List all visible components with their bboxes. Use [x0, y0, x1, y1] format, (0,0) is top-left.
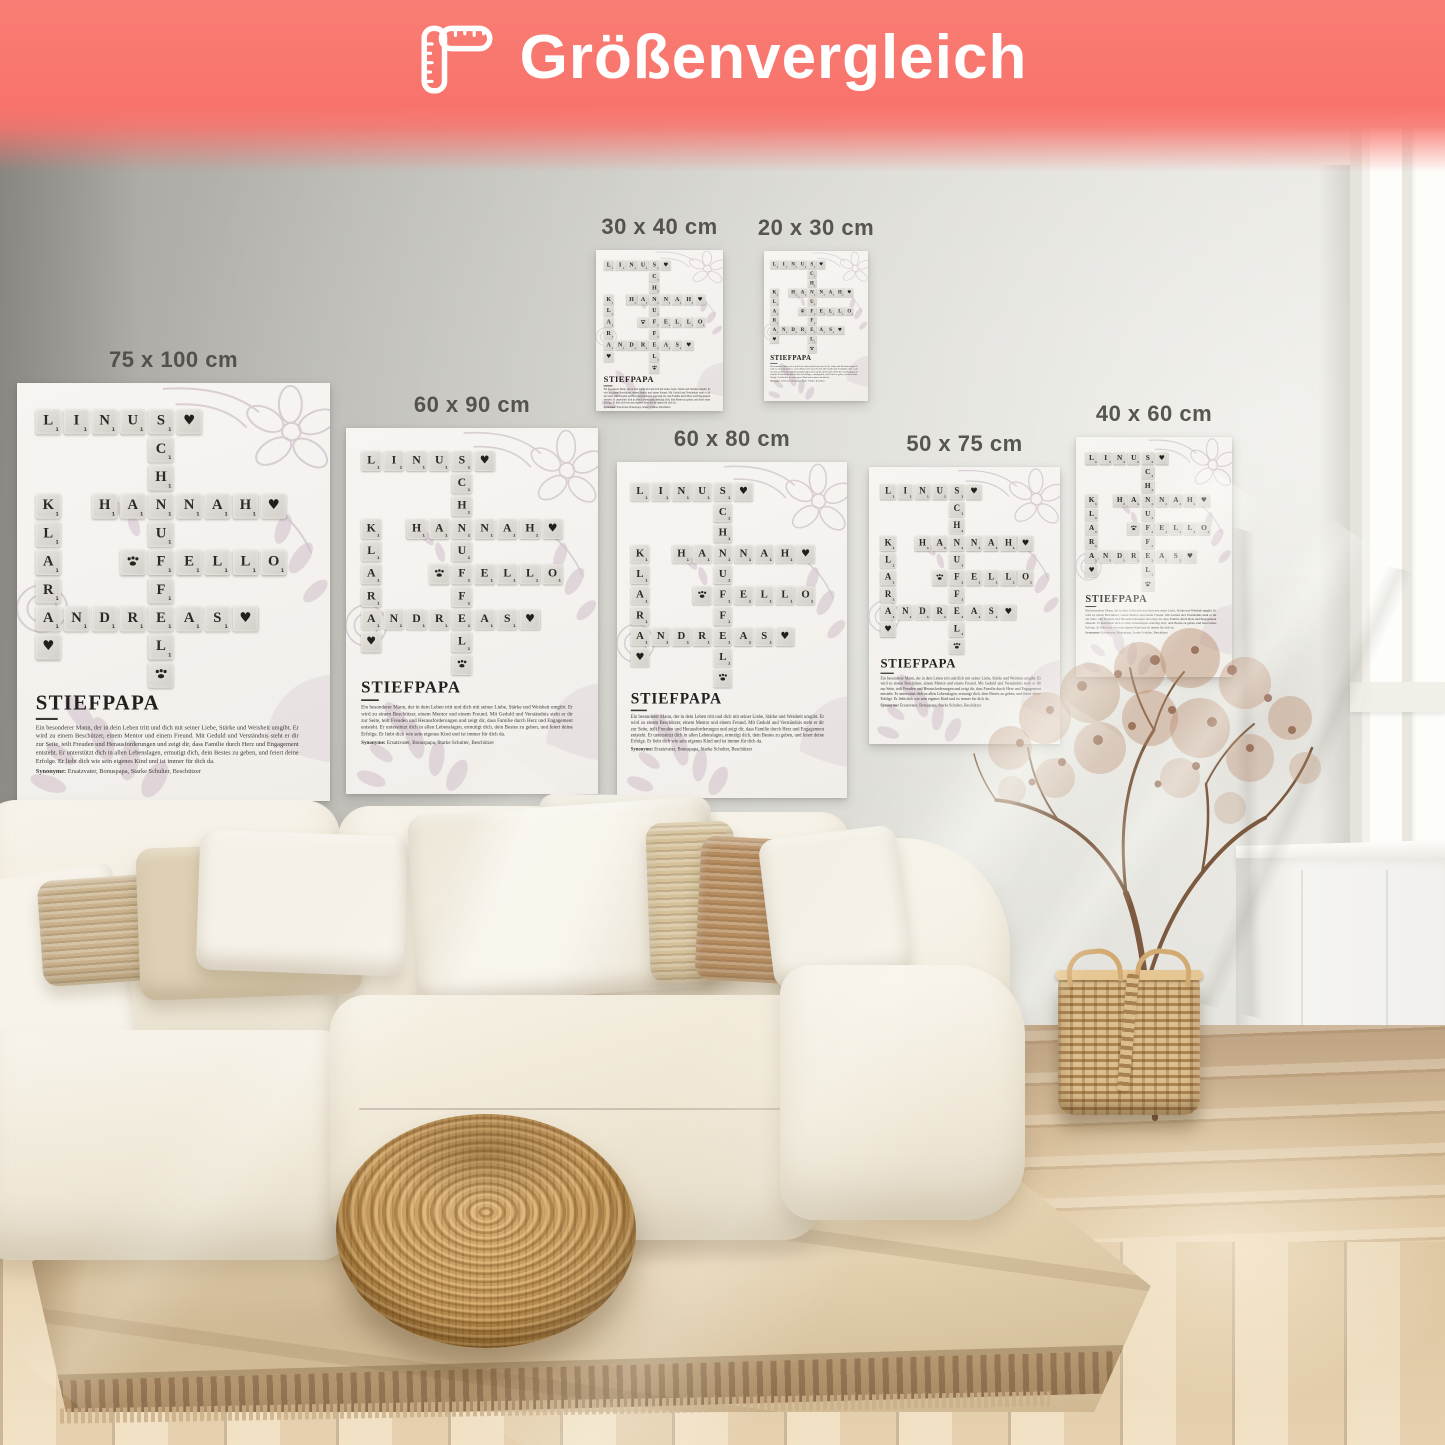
tile-A: A1 [1085, 550, 1097, 562]
tile-I: I1 [1099, 452, 1111, 464]
tile-F: F1 [649, 329, 659, 339]
poster-description: Ein besonderer Mann, der in dein Leben t… [770, 365, 857, 379]
tile-value: 1 [377, 557, 380, 561]
tile-A: A1 [932, 536, 947, 551]
tile-H: H1 [915, 536, 930, 551]
tile-N: N1 [1099, 550, 1111, 562]
tile-paw [693, 586, 711, 604]
tile-value: 1 [1137, 504, 1139, 506]
tile-S: S1 [1142, 452, 1154, 464]
tile-value: 1 [927, 496, 929, 499]
tile-L: L1 [880, 484, 895, 499]
tile-U: U1 [120, 409, 145, 434]
tile-E: E1 [714, 628, 732, 646]
paw-icon [718, 674, 727, 682]
tile-heart: ♥ [1085, 564, 1097, 576]
tile-H: H1 [649, 283, 659, 293]
tile-I: I1 [652, 483, 670, 501]
tile-value: 1 [1123, 462, 1125, 464]
tile-N: N1 [649, 294, 659, 304]
poster-print: L1I1N1U1S1♥C1H1K1H1A1N1N1A1H1♥L1U1A1F1E1… [17, 383, 330, 801]
tile-value: 1 [55, 428, 58, 433]
tile-value: 1 [645, 559, 647, 562]
tile-value: 1 [777, 314, 778, 316]
tile-value: 1 [422, 466, 425, 470]
tile-value: 1 [687, 497, 689, 500]
tile-L: L1 [1184, 522, 1196, 534]
tile-value: 1 [634, 302, 635, 304]
tile-value: 1 [55, 569, 58, 574]
tile-value: 1 [645, 642, 647, 645]
tile-E: E1 [661, 317, 671, 327]
poster-synonyms: Synonyme: Ersatzvater, Bonuspapa, Starke… [361, 741, 573, 748]
tile-value: 1 [892, 565, 894, 568]
tile-value: 1 [1151, 518, 1153, 520]
tile-heart: ♥ [966, 484, 981, 499]
tile-paw [649, 363, 659, 373]
tile-value: 1 [892, 616, 894, 619]
sofa-seat [780, 965, 1025, 1220]
tile-H: H1 [233, 494, 258, 519]
tile-value: 1 [1095, 504, 1097, 506]
cushion [196, 829, 409, 976]
sofa-seat [0, 1030, 350, 1260]
tile-heart: ♥ [845, 288, 853, 296]
tile-value: 1 [707, 559, 709, 562]
heart-icon: ♥ [770, 335, 778, 343]
tile-value: 1 [1109, 462, 1111, 464]
title-underline [604, 385, 613, 386]
tile-value: 1 [558, 580, 561, 584]
tile-N: N1 [615, 340, 625, 350]
tile-value: 1 [422, 534, 425, 538]
tile-value: 1 [657, 314, 658, 316]
tile-N: N1 [148, 494, 173, 519]
tile-value: 1 [1013, 582, 1015, 585]
title-underline [631, 710, 647, 712]
tile-F: F1 [1142, 522, 1154, 534]
tile-C: C1 [148, 437, 173, 462]
heart-icon: ♥ [261, 494, 286, 519]
tile-L: L1 [770, 260, 778, 268]
tile-L: L1 [684, 317, 694, 327]
tile-L: L1 [714, 648, 732, 666]
tile-value: 1 [833, 332, 834, 334]
tile-L: L1 [1170, 522, 1182, 534]
tile-N: N1 [626, 260, 636, 270]
tile-N: N1 [1142, 494, 1154, 506]
tile-H: H1 [452, 496, 472, 516]
tile-value: 1 [1013, 548, 1015, 551]
tile-value: 1 [795, 295, 796, 297]
tile-value: 1 [680, 348, 681, 350]
tile-value: 1 [646, 268, 647, 270]
tile-U: U1 [714, 566, 732, 584]
heart-icon: ♥ [776, 628, 794, 646]
tile-value: 1 [445, 625, 448, 629]
tile-value: 1 [645, 497, 647, 500]
synonyms-label: Synonyme: [770, 380, 780, 382]
poster-title: STIEFPAPA [770, 355, 857, 362]
tile-value: 1 [377, 466, 380, 470]
tile-value: 1 [634, 348, 635, 350]
tile-value: 1 [168, 569, 171, 574]
poster-synonyms: Synonyme: Ersatzvater, Bonuspapa, Starke… [770, 380, 857, 383]
poster-print: L1I1N1U1S1♥C1H1K1H1A1N1N1A1H1♥L1U1A1F1E1… [596, 250, 723, 411]
tile-value: 1 [168, 485, 171, 490]
tile-H: H1 [789, 288, 797, 296]
tile-U: U1 [1142, 508, 1154, 520]
tile-L: L1 [1001, 570, 1016, 585]
tile-value: 1 [490, 534, 493, 538]
tile-value: 1 [892, 599, 894, 602]
tile-N: N1 [714, 545, 732, 563]
tile-I: I1 [615, 260, 625, 270]
tile-F: F1 [452, 564, 472, 584]
tile-H: H1 [92, 494, 117, 519]
heart-icon: ♥ [836, 326, 844, 334]
tile-value: 1 [961, 582, 963, 585]
poster-artwork: L1I1N1U1S1♥C1H1K1H1A1N1N1A1H1♥L1U1A1F1E1… [346, 428, 598, 794]
poster-print: L1I1N1U1S1♥C1H1K1H1A1N1N1A1H1♥L1U1A1F1E1… [346, 428, 598, 794]
tile-D: D1 [789, 326, 797, 334]
tile-R: R1 [36, 578, 61, 603]
tile-value: 1 [833, 295, 834, 297]
heart-icon: ♥ [880, 622, 895, 637]
tile-A: A1 [880, 605, 895, 620]
tile-S: S1 [826, 326, 834, 334]
tile-value: 1 [1137, 462, 1139, 464]
poster-size-label: 50 x 75 cm [906, 431, 1022, 457]
tile-value: 1 [728, 497, 730, 500]
tile-value: 1 [680, 325, 681, 327]
tile-F: F1 [808, 307, 816, 315]
paw-icon [457, 660, 467, 669]
tile-S: S1 [808, 260, 816, 268]
tile-value: 1 [707, 497, 709, 500]
tile-value: 1 [669, 348, 670, 350]
tile-value: 1 [814, 332, 815, 334]
tile-value: 1 [140, 513, 143, 518]
tile-value: 1 [400, 466, 403, 470]
tile-value: 1 [490, 580, 493, 584]
poster-print: L1I1N1U1S1♥C1H1K1H1A1N1N1A1H1♥L1U1A1F1E1… [617, 462, 847, 798]
tile-paw [808, 345, 816, 353]
tile-value: 1 [445, 466, 448, 470]
tile-value: 1 [777, 304, 778, 306]
title-underline [770, 363, 777, 364]
tile-value: 1 [657, 325, 658, 327]
poster-synonyms: Synonyme: Ersatzvater, Bonuspapa, Starke… [604, 406, 711, 409]
tile-value: 1 [769, 642, 771, 645]
tile-L: L1 [604, 306, 614, 316]
tile-value: 1 [55, 513, 58, 518]
tile-value: 1 [814, 276, 815, 278]
wicker-basket [1058, 975, 1200, 1115]
tile-heart: ♥ [543, 519, 563, 539]
tile-A: A1 [672, 294, 682, 304]
tile-U: U1 [148, 522, 173, 547]
tile-value: 1 [814, 304, 815, 306]
tile-value: 1 [910, 616, 912, 619]
tile-A: A1 [984, 536, 999, 551]
living-room-scene: 75 x 100 cm [0, 0, 1445, 1445]
tile-N: N1 [780, 326, 788, 334]
tile-L: L1 [520, 564, 540, 584]
tile-value: 1 [749, 559, 751, 562]
tile-S: S1 [649, 260, 659, 270]
tile-S: S1 [949, 484, 964, 499]
scrabble-grid: L1I1N1U1S1♥C1H1K1H1A1N1N1A1H1♥L1U1A1F1E1… [36, 409, 291, 691]
poster-title: STIEFPAPA [36, 693, 299, 715]
tile-value: 1 [790, 559, 792, 562]
tile-value: 1 [692, 302, 693, 304]
tile-value: 1 [1095, 532, 1097, 534]
tile-A: A1 [880, 570, 895, 585]
tile-K: K1 [880, 536, 895, 551]
tile-value: 1 [657, 291, 658, 293]
tile-heart: ♥ [1184, 550, 1196, 562]
tile-value: 1 [1151, 462, 1153, 464]
tile-L: L1 [36, 522, 61, 547]
tile-E: E1 [808, 326, 816, 334]
tile-A: A1 [361, 609, 381, 629]
title-underline [36, 718, 58, 720]
tile-L: L1 [770, 298, 778, 306]
tile-A: A1 [604, 317, 614, 327]
tile-F: F1 [714, 586, 732, 604]
tile-value: 1 [513, 534, 516, 538]
tile-value: 1 [612, 302, 613, 304]
tile-S: S1 [755, 628, 773, 646]
tile-value: 1 [795, 332, 796, 334]
tile-value: 1 [1095, 560, 1097, 562]
tile-F: F1 [949, 570, 964, 585]
tile-N: N1 [817, 288, 825, 296]
tile-A: A1 [661, 340, 671, 350]
poster-60x90cm: 60 x 90 cm [346, 428, 598, 794]
tile-value: 1 [536, 534, 539, 538]
tile-value: 1 [777, 295, 778, 297]
tile-value: 1 [728, 538, 730, 541]
tile-value: 1 [892, 548, 894, 551]
tile-R: R1 [604, 329, 614, 339]
tile-A: A1 [826, 288, 834, 296]
tile-L: L1 [836, 307, 844, 315]
tile-R: R1 [932, 605, 947, 620]
tile-value: 1 [944, 616, 946, 619]
tile-heart: ♥ [770, 335, 778, 343]
tile-value: 1 [422, 625, 425, 629]
heart-icon: ♥ [845, 288, 853, 296]
tile-H: H1 [406, 519, 426, 539]
tile-value: 1 [786, 332, 787, 334]
tile-A: A1 [120, 494, 145, 519]
tile-paw [714, 669, 732, 687]
tile-value: 1 [468, 557, 471, 561]
tile-L: L1 [776, 586, 794, 604]
tile-value: 1 [833, 314, 834, 316]
tile-value: 1 [805, 267, 806, 269]
tile-E: E1 [475, 564, 495, 584]
tile-R: R1 [798, 326, 806, 334]
tile-value: 1 [468, 489, 471, 493]
tile-F: F1 [1142, 536, 1154, 548]
tile-heart: ♥ [475, 451, 495, 471]
poster-artwork: L1I1N1U1S1♥C1H1K1H1A1N1N1A1H1♥L1U1A1F1E1… [764, 251, 868, 401]
tile-D: D1 [626, 340, 636, 350]
tile-value: 1 [1151, 504, 1153, 506]
tile-value: 1 [224, 513, 227, 518]
paw-icon [936, 574, 944, 581]
tile-L: L1 [1142, 564, 1154, 576]
tile-H: H1 [520, 519, 540, 539]
tile-D: D1 [915, 605, 930, 620]
wicker-pouf [336, 1114, 636, 1348]
tile-R: R1 [361, 587, 381, 607]
tile-R: R1 [693, 628, 711, 646]
tile-value: 1 [1151, 560, 1153, 562]
tile-value: 1 [842, 314, 843, 316]
banner-title: Größenvergleich [520, 27, 1028, 89]
tile-N: N1 [898, 605, 913, 620]
tile-K: K1 [361, 519, 381, 539]
tile-F: F1 [148, 578, 173, 603]
tile-H: H1 [684, 294, 694, 304]
tile-value: 1 [377, 580, 380, 584]
tile-heart: ♥ [796, 545, 814, 563]
heart-icon: ♥ [543, 519, 563, 539]
tile-value: 1 [842, 295, 843, 297]
tile-value: 1 [814, 267, 815, 269]
tile-value: 1 [927, 548, 929, 551]
tile-value: 1 [978, 548, 980, 551]
tile-value: 1 [786, 267, 787, 269]
tile-N: N1 [475, 519, 495, 539]
tile-value: 1 [657, 268, 658, 270]
tile-value: 1 [680, 302, 681, 304]
poster-description: Ein besonderer Mann, der in dein Leben t… [361, 705, 573, 738]
poster-size-label: 75 x 100 cm [109, 347, 238, 373]
tile-value: 1 [612, 337, 613, 339]
tile-N: N1 [1156, 494, 1168, 506]
tile-R: R1 [770, 317, 778, 325]
synonyms-label: Synonyme: [36, 769, 66, 775]
poster-size-label: 30 x 40 cm [601, 214, 717, 240]
tile-L: L1 [36, 409, 61, 434]
tile-value: 1 [468, 648, 471, 652]
tile-value: 1 [687, 642, 689, 645]
tile-U: U1 [808, 298, 816, 306]
size-comparison-banner: Größenvergleich [0, 0, 1445, 172]
tile-A: A1 [798, 288, 806, 296]
tile-value: 1 [692, 325, 693, 327]
tile-value: 1 [944, 496, 946, 499]
tile-S: S1 [205, 606, 230, 631]
tile-value: 1 [490, 625, 493, 629]
tile-value: 1 [612, 314, 613, 316]
tile-S: S1 [672, 340, 682, 350]
tile-A: A1 [205, 494, 230, 519]
tile-O: O1 [543, 564, 563, 584]
scrabble-grid: L1I1N1U1S1♥C1H1K1H1A1N1N1A1H1♥L1U1A1F1E1… [361, 451, 566, 678]
tile-A: A1 [755, 545, 773, 563]
tile-value: 1 [468, 625, 471, 629]
poster-title: STIEFPAPA [604, 375, 711, 384]
tile-O: O1 [1018, 570, 1033, 585]
tile-O: O1 [796, 586, 814, 604]
tile-value: 1 [728, 642, 730, 645]
tile-value: 1 [168, 597, 171, 602]
tile-R: R1 [429, 609, 449, 629]
tile-C: C1 [452, 473, 472, 493]
tile-S: S1 [1170, 550, 1182, 562]
tile-R: R1 [638, 340, 648, 350]
tile-value: 1 [749, 642, 751, 645]
poster-75x100cm: 75 x 100 cm [17, 383, 330, 801]
tile-paw [452, 655, 472, 675]
title-underline [880, 673, 893, 674]
tile-value: 1 [112, 513, 115, 518]
tile-I: I1 [384, 451, 404, 471]
scrabble-grid: L1I1N1U1S1♥C1H1K1H1A1N1N1A1H1♥L1U1A1F1E1… [604, 260, 707, 374]
tile-heart: ♥ [776, 628, 794, 646]
tile-value: 1 [468, 534, 471, 538]
heart-icon: ♥ [1156, 452, 1168, 464]
tile-A: A1 [36, 606, 61, 631]
tile-A: A1 [429, 519, 449, 539]
tile-value: 1 [1151, 476, 1153, 478]
tile-O: O1 [695, 317, 705, 327]
tile-value: 1 [513, 625, 516, 629]
tile-value: 1 [961, 548, 963, 551]
tile-value: 1 [377, 534, 380, 538]
tile-value: 1 [612, 325, 613, 327]
poster-synonyms: Synonyme: Ersatzvater, Bonuspapa, Starke… [36, 769, 299, 777]
tile-N: N1 [966, 536, 981, 551]
tile-L: L1 [672, 317, 682, 327]
heart-icon: ♥ [631, 648, 649, 666]
tile-A: A1 [770, 307, 778, 315]
tile-paw [798, 307, 806, 315]
poster-artwork: L1I1N1U1S1♥C1H1K1H1A1N1N1A1H1♥L1U1A1F1E1… [17, 383, 330, 801]
poster-60x80cm: 60 x 80 cm [617, 462, 847, 798]
tile-N: N1 [406, 451, 426, 471]
tile-C: C1 [649, 272, 659, 282]
tile-D: D1 [92, 606, 117, 631]
tile-F: F1 [452, 587, 472, 607]
synonyms-text: Ersatzvater, Bonuspapa, Starke Schulter,… [68, 769, 201, 775]
heart-icon: ♥ [604, 352, 614, 362]
tile-H: H1 [808, 279, 816, 287]
tile-L: L1 [148, 634, 173, 659]
tile-value: 1 [961, 565, 963, 568]
tile-E: E1 [734, 586, 752, 604]
poster-artwork: L1I1N1U1S1♥C1H1K1H1A1N1N1A1H1♥L1U1A1F1E1… [596, 250, 723, 411]
tile-value: 1 [777, 267, 778, 269]
tile-N: N1 [915, 484, 930, 499]
tile-A: A1 [36, 550, 61, 575]
tile-U: U1 [798, 260, 806, 268]
tile-N: N1 [661, 294, 671, 304]
tile-value: 1 [1123, 504, 1125, 506]
tile-value: 1 [777, 332, 778, 334]
tile-value: 1 [811, 600, 813, 603]
heart-icon: ♥ [36, 634, 61, 659]
tile-value: 1 [140, 428, 143, 433]
tile-value: 1 [612, 348, 613, 350]
tile-value: 1 [707, 642, 709, 645]
